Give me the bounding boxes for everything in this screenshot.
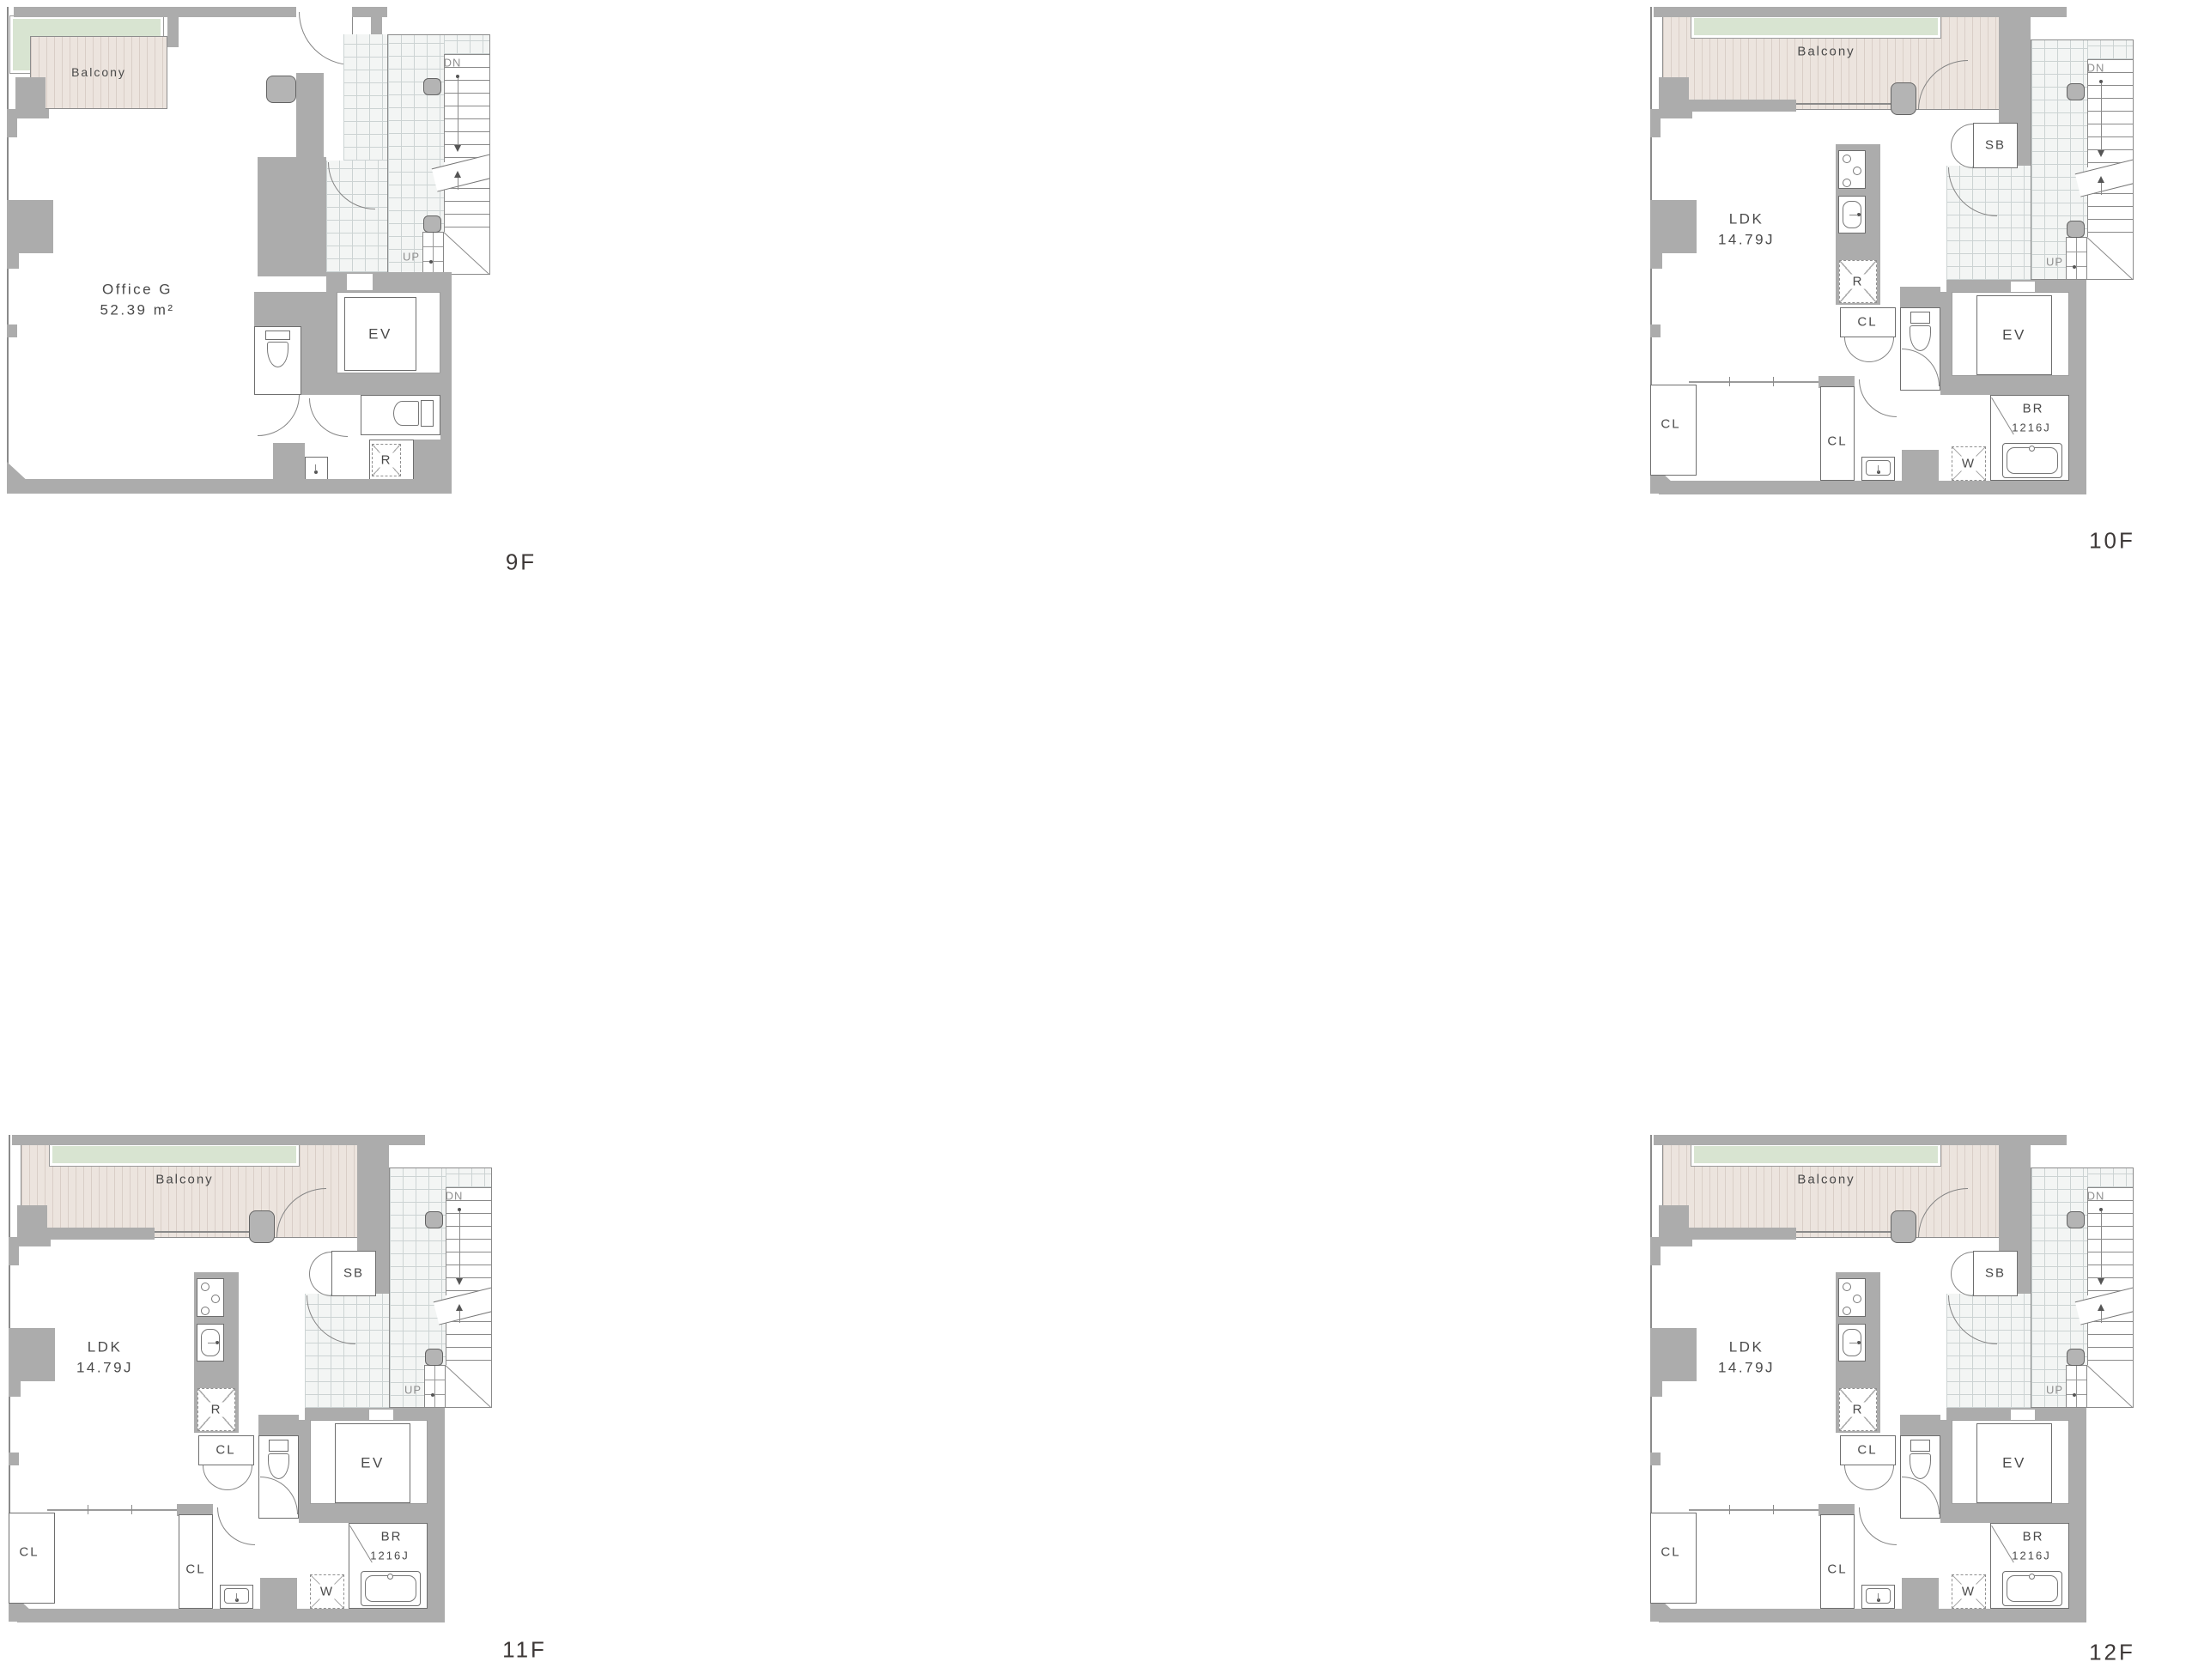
entry-floor-tile: [343, 34, 387, 161]
floor-plan-ldk: Balcony DN: [1650, 1135, 2140, 1624]
stair-treads: [446, 1321, 492, 1365]
wall-segment: [1659, 77, 1689, 109]
stairs-up-label: UP: [404, 1385, 422, 1396]
elevator-label: EV: [368, 327, 392, 342]
wall-segment: [1952, 1504, 2069, 1523]
floor-plan-office: Balcony: [7, 7, 496, 496]
faucet-icon: [315, 464, 316, 471]
stairs-up-label: UP: [2046, 1385, 2063, 1396]
closet-label: CL: [1661, 1546, 1680, 1559]
window-line: [1796, 103, 1892, 105]
stair-treads: [2087, 193, 2134, 237]
wall-segment: [1650, 1453, 1661, 1465]
toilet-icon: [393, 401, 419, 426]
stair-direction-line: [458, 78, 458, 145]
planter: [1691, 15, 1940, 38]
shoe-box-door-arc: [309, 1252, 331, 1274]
balcony-label: Balcony: [155, 1174, 213, 1186]
stair-direction-line: [459, 1211, 460, 1278]
refrigerator-label: R: [1850, 276, 1867, 288]
stairwell: DN UP: [2031, 1168, 2134, 1408]
hall-door-arc: [1859, 379, 1897, 417]
stair-treads: [446, 1187, 492, 1295]
wall-segment: [273, 443, 305, 479]
pillar: [423, 215, 441, 233]
door-opening: [347, 274, 373, 290]
stair-treads: [2087, 1321, 2134, 1365]
wall-segment: [1650, 109, 1692, 118]
stair-landing: [424, 1365, 446, 1408]
closet-door-arc: [1844, 337, 1869, 362]
pillar: [2067, 221, 2085, 238]
stairs-down-label: DN: [446, 1191, 464, 1202]
unit-area-label: 14.79J: [1718, 1361, 1775, 1375]
wall-segment: [1900, 287, 1940, 307]
closet-door-arc: [1869, 337, 1894, 362]
closet-label: CL: [1661, 418, 1680, 431]
arrow-down-icon: [2098, 150, 2104, 157]
window-line: [155, 1231, 251, 1233]
wall-segment: [7, 200, 53, 253]
floor-plan-ldk: Balcony DN: [9, 1135, 498, 1624]
wall-segment: [301, 292, 337, 395]
wall-segment: [17, 1609, 445, 1622]
bathroom-label: BR: [2023, 403, 2044, 415]
refrigerator-label: R: [379, 454, 395, 467]
wall-segment: [1650, 1328, 1697, 1381]
wall-segment: [326, 272, 452, 292]
toilet-tank: [1910, 312, 1930, 324]
pillar: [266, 76, 296, 103]
arrow-down-icon: [2098, 1278, 2104, 1285]
stair-hall-tile: [2087, 1168, 2134, 1187]
wall-segment: [1940, 1420, 1952, 1523]
wall-segment: [9, 1381, 21, 1397]
wall-segment: [1659, 1609, 2086, 1622]
stair-direction-dot: [2073, 265, 2076, 269]
wall-segment: [1650, 118, 1661, 137]
stair-hall-tile: [2087, 40, 2134, 59]
wall-segment: [440, 275, 452, 494]
unit-label: LDK: [88, 1340, 123, 1355]
wall-segment: [1900, 1415, 1940, 1435]
stair-direction-line: [2101, 183, 2102, 195]
partition-line: [1689, 1509, 1819, 1511]
wall-segment: [337, 373, 440, 395]
stairs-down-label: DN: [2087, 63, 2105, 74]
stair-diagonal: [2086, 237, 2134, 280]
stairwell: DN UP: [2031, 39, 2134, 280]
pillar: [2067, 83, 2085, 100]
floorplan-sheet: Balcony: [0, 0, 2198, 1680]
drain-icon: [2029, 1574, 2035, 1580]
burner-icon: [1843, 1307, 1851, 1315]
stairs-up-label: UP: [2046, 257, 2063, 268]
bathroom-label: BR: [381, 1531, 403, 1544]
partition-tick: [88, 1505, 88, 1514]
burner-icon: [211, 1295, 220, 1303]
wall-segment: [1902, 450, 1939, 481]
partition-tick: [1729, 377, 1730, 386]
stair-landing: [2066, 237, 2087, 280]
wall-segment: [1650, 253, 1662, 269]
pillar: [425, 1211, 443, 1228]
wall-segment: [1940, 292, 1952, 395]
closet-label: CL: [1857, 316, 1877, 329]
stair-direction-line: [458, 178, 458, 190]
wall-segment: [9, 1246, 19, 1265]
wall-segment: [1650, 324, 1661, 337]
stair-treads: [444, 54, 490, 162]
washer-label: W: [1959, 458, 1978, 470]
shoe-box-door-arc: [1951, 1252, 1973, 1274]
closet-label: CL: [1827, 1563, 1847, 1576]
stair-diagonal: [2086, 1365, 2134, 1408]
pillar: [249, 1210, 275, 1243]
wall-segment: [15, 77, 46, 109]
wall-segment: [1902, 1578, 1939, 1609]
stair-treads: [444, 188, 490, 232]
wall-segment: [9, 1453, 19, 1465]
balcony-label: Balcony: [71, 66, 126, 78]
unit-label: LDK: [1729, 212, 1764, 227]
wall-segment: [296, 73, 324, 157]
bathroom-size-label: 1216J: [2012, 422, 2050, 434]
drain-icon: [387, 1574, 393, 1580]
closet-label: CL: [19, 1546, 39, 1559]
wall-segment: [258, 157, 326, 276]
bathroom-size-label: 1216J: [2012, 1550, 2050, 1562]
wall-segment: [258, 1415, 299, 1435]
arrow-up-icon: [456, 1304, 463, 1311]
stair-hall-tile: [444, 35, 490, 54]
pillar: [2067, 1211, 2085, 1228]
partition-tick: [1773, 377, 1774, 386]
balcony-label: Balcony: [1797, 1174, 1855, 1186]
unit-area-label: 52.39 m²: [100, 303, 174, 318]
pillar: [423, 78, 441, 95]
wall-segment: [254, 292, 301, 326]
wall-segment: [14, 7, 296, 17]
shoe-box-label: SB: [343, 1267, 364, 1280]
toilet-tank: [265, 331, 290, 340]
wall-segment: [7, 109, 49, 118]
faucet-icon: [236, 1593, 237, 1600]
wall-segment: [1952, 376, 2069, 395]
burner-icon: [1843, 1283, 1851, 1291]
unit-label: LDK: [1729, 1340, 1764, 1355]
faucet-icon: [1878, 1593, 1879, 1600]
hall-door-arc: [217, 1507, 255, 1545]
burner-icon: [1843, 155, 1851, 163]
wall-segment: [1650, 200, 1697, 253]
partition-line: [1689, 381, 1819, 383]
partition-tick: [1773, 1505, 1774, 1514]
wall-segment: [1659, 1205, 1689, 1237]
faucet-icon: [1878, 465, 1879, 472]
bathroom-size-label: 1216J: [370, 1550, 409, 1562]
stair-hall-tile: [446, 1168, 492, 1187]
arrow-up-icon: [454, 171, 461, 178]
toilet-tank: [1910, 1440, 1930, 1452]
arrow-down-icon: [454, 145, 461, 152]
refrigerator-label: R: [209, 1404, 225, 1416]
stair-direction-dot: [431, 1393, 434, 1397]
drain-icon: [2029, 446, 2035, 452]
wall-segment: [428, 1418, 445, 1622]
wall-segment: [2069, 290, 2086, 494]
stair-direction-line: [2101, 1311, 2102, 1323]
wall-segment: [1650, 1246, 1661, 1265]
stair-treads: [2087, 59, 2134, 167]
wall-segment: [17, 1205, 47, 1237]
wall-segment: [2069, 1418, 2086, 1622]
shoe-box-label: SB: [1985, 1267, 2006, 1280]
stair-diagonal: [445, 1365, 492, 1408]
arrow-up-icon: [2098, 1304, 2104, 1311]
stair-landing: [422, 232, 444, 275]
unit-area-label: 14.79J: [76, 1361, 133, 1375]
wall-segment: [7, 118, 17, 137]
faucet-icon: [208, 1343, 216, 1343]
partition-tick: [1729, 1505, 1730, 1514]
wall-segment: [7, 253, 19, 269]
burner-icon: [1853, 167, 1861, 175]
closet-label: CL: [1827, 435, 1847, 448]
arrow-down-icon: [456, 1278, 463, 1285]
wall-segment: [414, 440, 440, 479]
wall-segment: [167, 7, 179, 47]
balcony-label: Balcony: [1797, 45, 1855, 58]
partition-tick: [131, 1505, 132, 1514]
hall-door-arc: [309, 398, 348, 437]
pillar: [1891, 82, 1916, 115]
refrigerator-label: R: [1850, 1404, 1867, 1416]
toilet-tank: [269, 1440, 288, 1452]
closet-door-arc: [1869, 1465, 1894, 1490]
washer-label: W: [1959, 1586, 1978, 1598]
wall-segment: [9, 1237, 51, 1246]
stair-direction-dot: [429, 260, 433, 264]
closet-label: CL: [185, 1563, 205, 1576]
hall-door-arc: [1859, 1507, 1897, 1545]
wall-segment: [310, 1504, 428, 1523]
wall-segment: [1659, 481, 2086, 494]
stair-direction-line: [459, 1311, 460, 1323]
planter: [50, 1143, 299, 1166]
floor-label: 9F: [506, 549, 537, 576]
arrow-up-icon: [2098, 176, 2104, 183]
burner-icon: [201, 1283, 209, 1291]
stair-treads: [2087, 1187, 2134, 1295]
pillar: [425, 1349, 443, 1366]
wall-segment: [260, 1578, 297, 1609]
stair-direction-dot: [2073, 1393, 2076, 1397]
shoe-box-label: SB: [1985, 139, 2006, 152]
wall-segment: [7, 479, 452, 494]
wall-segment: [299, 1420, 310, 1523]
elevator-label: EV: [2002, 328, 2026, 343]
stairwell: DN UP: [389, 1168, 492, 1408]
floor-plan-ldk: Balcony DN: [1650, 7, 2140, 496]
bathroom-label: BR: [2023, 1531, 2044, 1544]
hall-door-arc: [258, 395, 300, 436]
pillar: [2067, 1349, 2085, 1366]
elevator-label: EV: [361, 1456, 385, 1471]
stairs-down-label: DN: [2087, 1191, 2105, 1202]
stair-direction-line: [2101, 1211, 2102, 1278]
closet-door-arc: [203, 1465, 228, 1490]
wall-segment: [7, 324, 17, 337]
toilet-tank: [421, 400, 434, 427]
stairs-up-label: UP: [403, 252, 420, 263]
floor-label: 10F: [2089, 528, 2135, 555]
floor-label: 11F: [502, 1637, 547, 1664]
wall-segment: [1650, 1237, 1692, 1246]
stair-diagonal: [443, 232, 490, 275]
unit-label: Office G: [102, 282, 173, 297]
washer-label: W: [318, 1586, 337, 1598]
window-line: [1796, 1231, 1892, 1233]
planter: [1691, 1143, 1940, 1166]
burner-icon: [1853, 1295, 1861, 1303]
wall-segment: [9, 1328, 55, 1381]
faucet-icon: [1849, 215, 1858, 215]
closet-door-arc: [228, 1465, 252, 1490]
wall-segment: [1650, 1381, 1662, 1397]
closet-label: CL: [1857, 1444, 1877, 1457]
partition-line: [47, 1509, 177, 1511]
closet-door-arc: [1844, 1465, 1869, 1490]
stair-direction-line: [2101, 83, 2102, 150]
stair-landing: [2066, 1365, 2087, 1408]
stairwell: DN UP: [387, 34, 490, 275]
stairs-down-label: DN: [444, 58, 462, 69]
unit-area-label: 14.79J: [1718, 233, 1775, 247]
pillar: [1891, 1210, 1916, 1243]
burner-icon: [1843, 179, 1851, 187]
floor-label: 12F: [2089, 1640, 2135, 1666]
vanity-sink: [305, 457, 328, 481]
elevator-label: EV: [2002, 1456, 2026, 1471]
burner-icon: [201, 1307, 209, 1315]
faucet-icon: [1849, 1343, 1858, 1343]
closet-label: CL: [216, 1444, 235, 1457]
shoe-box-door-arc: [1951, 124, 1973, 146]
